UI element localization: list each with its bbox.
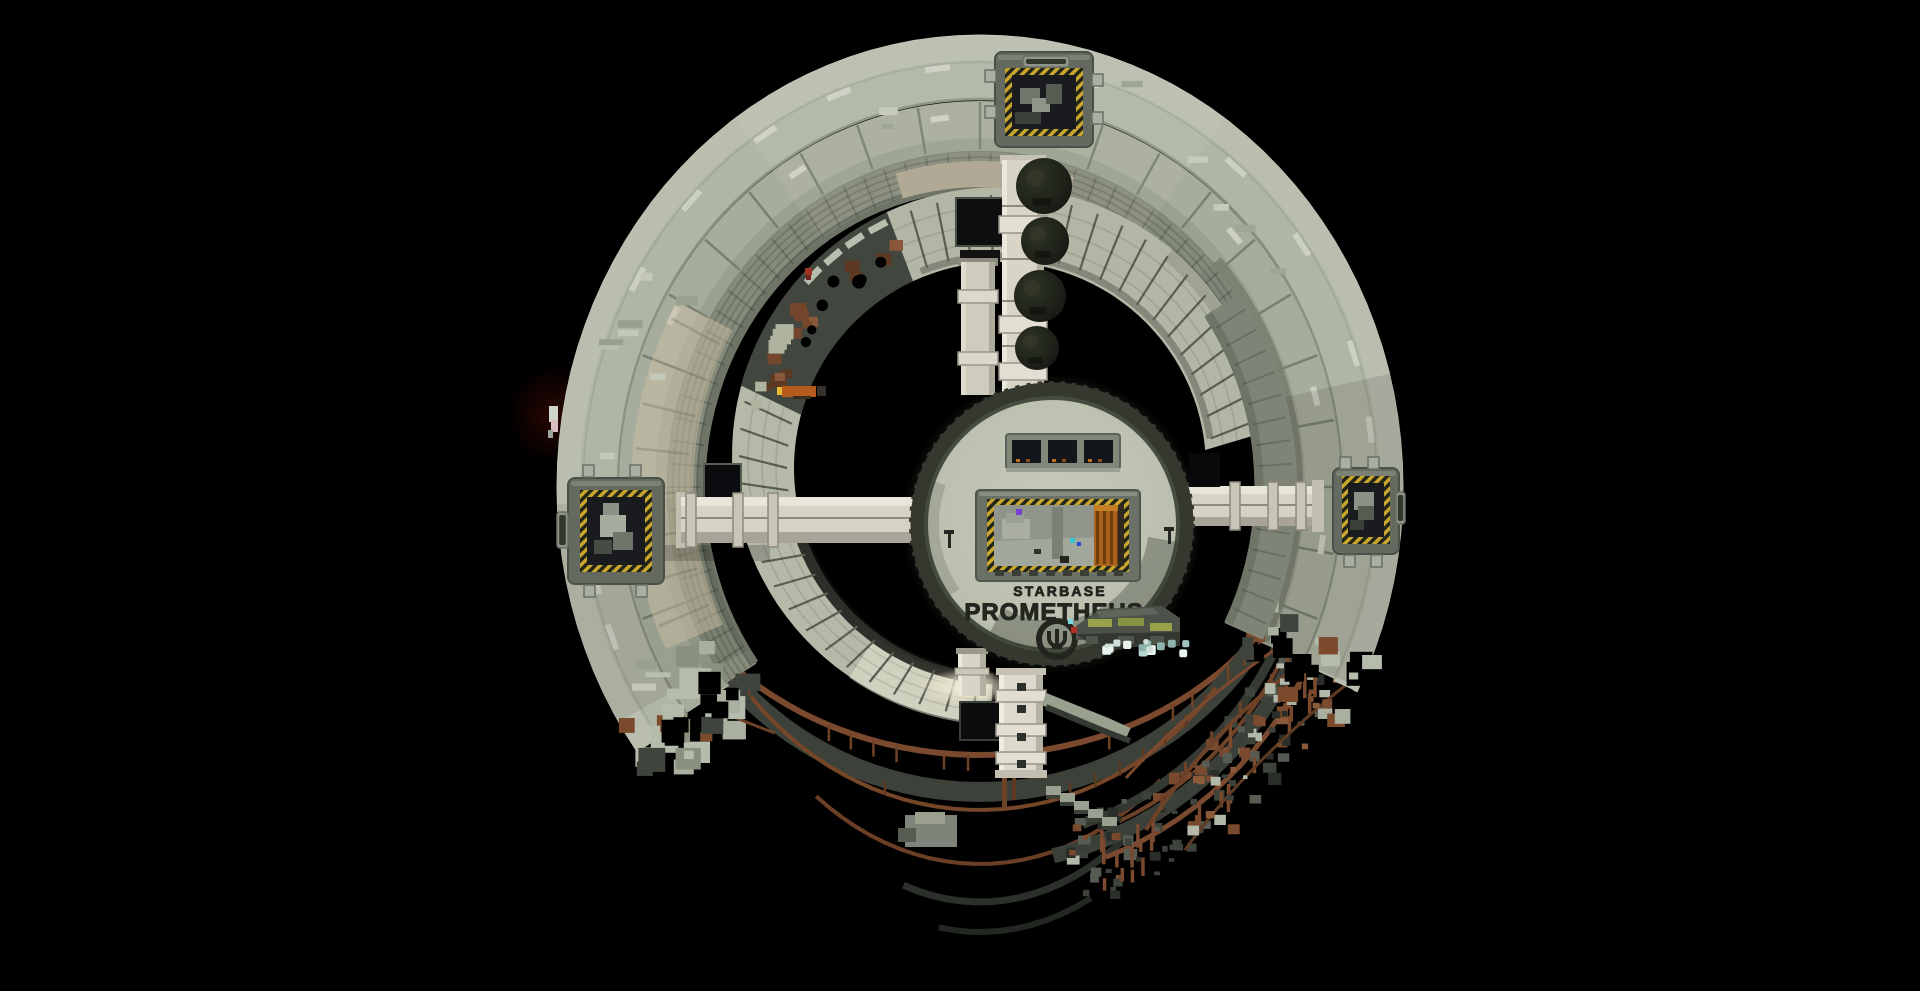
svg-text:STARBASE: STARBASE — [1013, 583, 1107, 599]
